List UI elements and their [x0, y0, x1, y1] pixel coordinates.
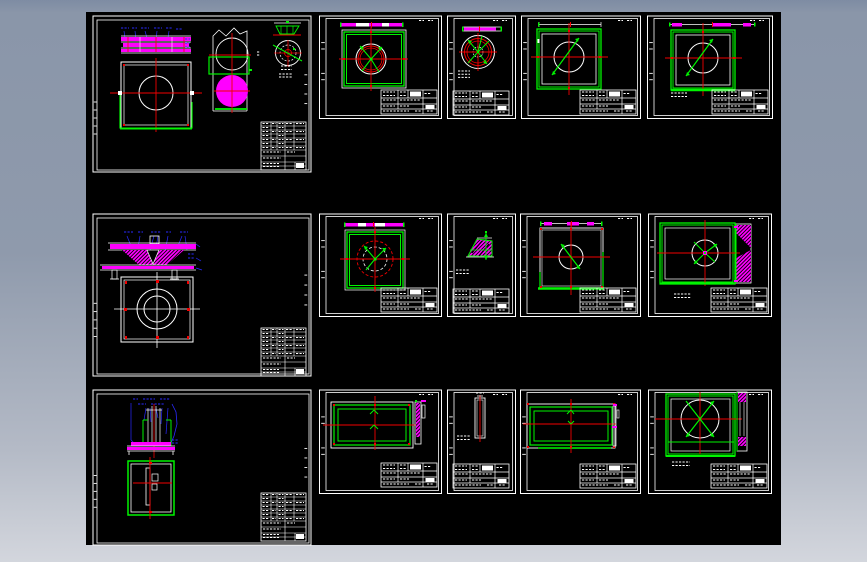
drawing-sheet-r1c2-part-sheet-r1c2[interactable] [318, 14, 443, 120]
drawing-sheet-r3c3-part-sheet-r3c3[interactable] [446, 388, 517, 495]
sheet-graphics-r3c2 [318, 388, 443, 495]
drawing-sheet-r3c2-part-sheet-r3c2[interactable] [318, 388, 443, 495]
sheet-graphics-r1c3 [446, 14, 517, 120]
drawing-sheet-r3c5-part-sheet-r3c5[interactable] [647, 388, 773, 495]
drawing-sheet-r1c4-part-sheet-r1c4[interactable] [520, 14, 642, 120]
sheet-graphics-r3c1 [88, 388, 313, 547]
app-window: { "app": {"description": "CAD multi-shee… [0, 0, 867, 562]
sheet-graphics-r1c4 [520, 14, 642, 120]
sheet-graphics-r3c4 [519, 388, 642, 495]
sheet-graphics-r2c5 [647, 212, 773, 318]
drawing-canvas[interactable] [86, 12, 781, 545]
drawing-sheet-r2c5-part-sheet-r2c5[interactable] [647, 212, 773, 318]
drawing-sheet-r3c4-part-sheet-r3c4[interactable] [519, 388, 642, 495]
drawing-sheet-r2c3-part-sheet-r2c3[interactable] [446, 212, 517, 318]
drawing-sheet-r2c4-part-sheet-r2c4[interactable] [519, 212, 642, 318]
drawing-sheet-r1c3-part-sheet-r1c3[interactable] [446, 14, 517, 120]
sheet-graphics-r1c2 [318, 14, 443, 120]
sheet-graphics-r3c3 [446, 388, 517, 495]
drawing-sheet-r3c1-assembly-sheet-row3[interactable] [88, 388, 313, 547]
sheet-graphics-r2c1 [88, 212, 313, 378]
sheet-graphics-r1c1 [88, 14, 313, 174]
sheet-graphics-r2c2 [318, 212, 443, 318]
drawing-sheet-r2c1-assembly-sheet-row2[interactable] [88, 212, 313, 378]
drawing-sheet-r2c2-part-sheet-r2c2[interactable] [318, 212, 443, 318]
sheet-graphics-r2c4 [519, 212, 642, 318]
drawing-sheet-r1c5-part-sheet-r1c5[interactable] [646, 14, 774, 120]
sheet-graphics-r2c3 [446, 212, 517, 318]
sheet-graphics-r1c5 [646, 14, 774, 120]
drawing-sheet-r1c1-assembly-sheet-row1[interactable] [88, 14, 313, 174]
sheet-graphics-r3c5 [647, 388, 773, 495]
